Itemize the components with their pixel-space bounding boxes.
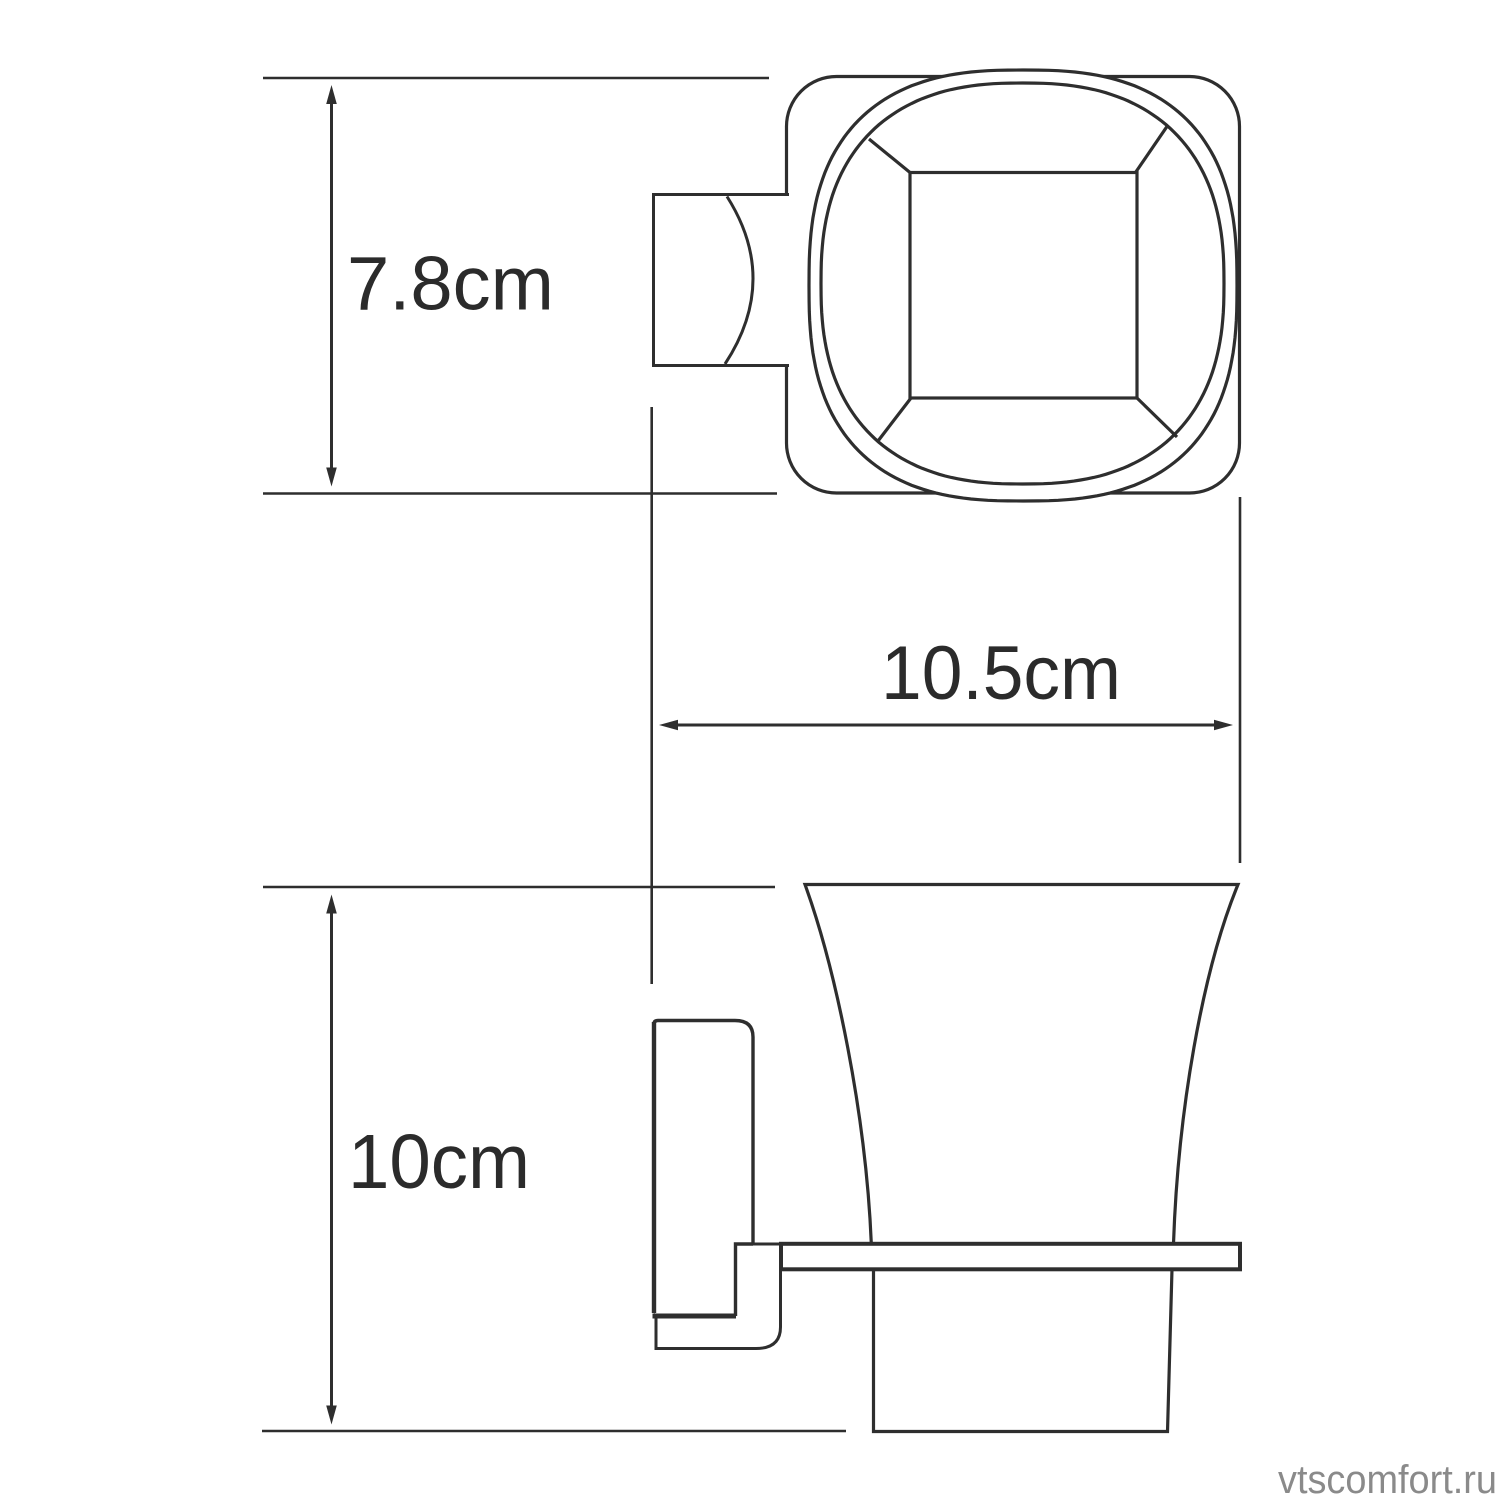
- svg-text:10.5cm: 10.5cm: [881, 631, 1121, 716]
- svg-text:vtscomfort.ru: vtscomfort.ru: [1278, 1458, 1497, 1502]
- svg-text:7.8cm: 7.8cm: [347, 242, 554, 327]
- svg-text:10cm: 10cm: [348, 1119, 530, 1205]
